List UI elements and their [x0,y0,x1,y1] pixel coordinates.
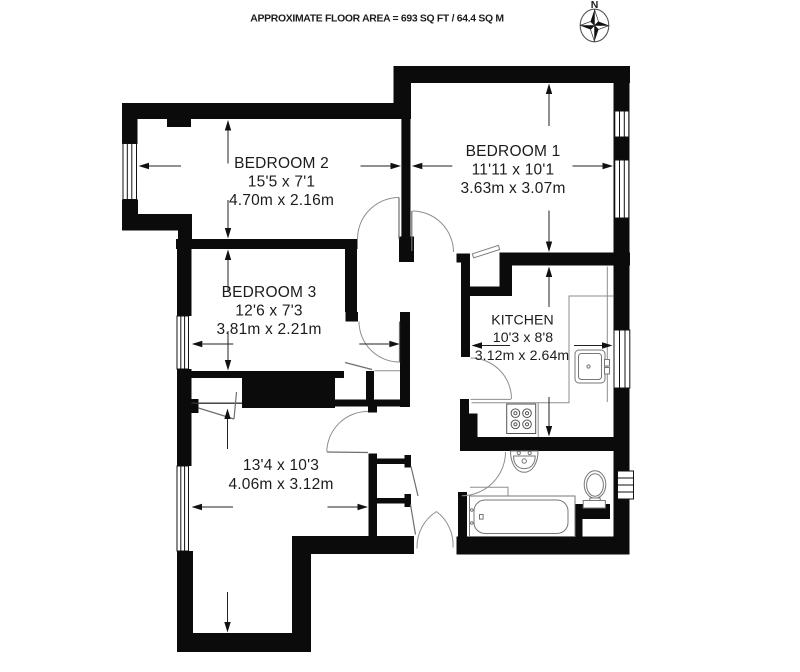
svg-text:12'6 x 7'3: 12'6 x 7'3 [235,303,302,320]
svg-text:BEDROOM 3: BEDROOM 3 [222,284,317,301]
svg-text:BEDROOM 1: BEDROOM 1 [466,143,561,160]
svg-text:4.70m x 2.16m: 4.70m x 2.16m [229,192,334,209]
svg-text:13'4 x 10'3: 13'4 x 10'3 [243,457,319,474]
svg-text:3.63m x 3.07m: 3.63m x 3.07m [460,180,565,197]
svg-text:10'3 x 8'8: 10'3 x 8'8 [493,329,554,345]
svg-text:3.81m x 2.21m: 3.81m x 2.21m [216,321,321,338]
svg-text:4.06m x 3.12m: 4.06m x 3.12m [228,476,333,493]
svg-text:3.12m x 2.64m: 3.12m x 2.64m [475,347,570,363]
svg-text:BEDROOM 2: BEDROOM 2 [234,155,329,172]
svg-text:KITCHEN: KITCHEN [491,312,554,328]
svg-text:11'11 x 10'1: 11'11 x 10'1 [472,162,555,179]
svg-text:APPROXIMATE FLOOR AREA = 693 S: APPROXIMATE FLOOR AREA = 693 SQ FT / 64.… [250,14,503,25]
svg-text:15'5 x 7'1: 15'5 x 7'1 [248,174,315,191]
